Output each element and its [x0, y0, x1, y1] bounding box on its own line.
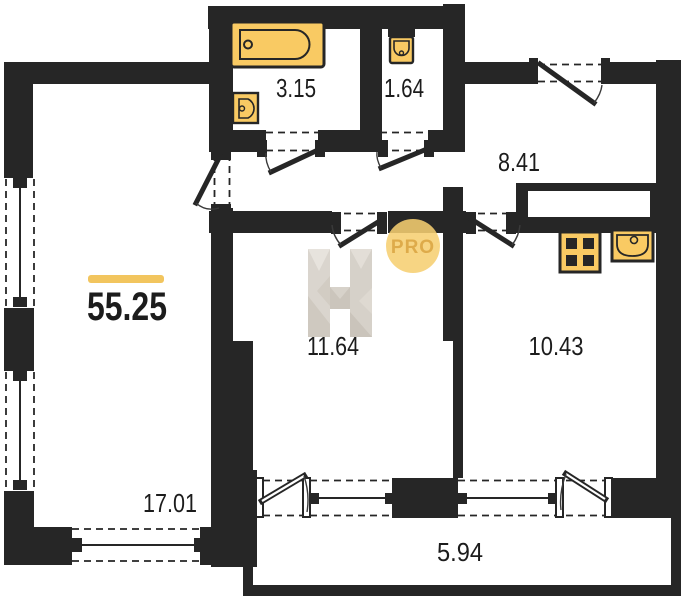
wall — [602, 62, 656, 84]
room-label-toilet: 1.64 — [384, 73, 424, 103]
floorplan: PRO 55.25 3.15 1.64 8.41 11.64 10.43 17.… — [0, 0, 681, 600]
window-room-balcony — [309, 481, 395, 516]
balcony-wall — [671, 518, 681, 596]
window-left-upper — [6, 178, 34, 307]
wall — [443, 187, 463, 211]
floorplan-drawing: PRO 55.25 3.15 1.64 8.41 11.64 10.43 17.… — [0, 0, 681, 600]
door-room-balcony — [256, 476, 310, 517]
outer-wall-left — [4, 62, 33, 178]
door-room — [331, 212, 388, 245]
kitchen-sink-icon — [612, 230, 653, 261]
room-label-balcony: 5.94 — [437, 537, 483, 567]
wall — [4, 308, 34, 371]
door-entrance — [529, 58, 610, 103]
room-label-room: 11.64 — [307, 331, 359, 361]
door-living-room — [196, 151, 231, 213]
wall — [443, 62, 538, 84]
room-label-bathroom: 3.15 — [276, 73, 316, 103]
door-toilet — [377, 133, 434, 169]
room-label-living-room: 17.01 — [143, 488, 197, 518]
door-kitchen-balcony — [556, 474, 612, 517]
room-label-hallway: 8.41 — [498, 147, 540, 177]
total-area-label: 55.25 — [87, 285, 167, 329]
stove-icon — [560, 232, 600, 272]
window-kitchen-balcony — [457, 481, 558, 516]
toilet-icon — [388, 20, 415, 63]
wardrobe-niche — [528, 191, 650, 217]
wall — [4, 527, 72, 565]
bathtub-icon — [231, 22, 324, 67]
total-area-underline — [88, 275, 164, 283]
wall — [453, 341, 463, 478]
balcony-wall — [243, 585, 681, 596]
door-kitchen — [466, 212, 520, 245]
wall — [612, 478, 656, 518]
bath-sink-icon — [233, 93, 258, 123]
h-logo-watermark — [308, 249, 372, 337]
wall — [443, 233, 463, 341]
door-bathroom — [257, 133, 325, 173]
wall — [209, 211, 332, 233]
pro-badge-label: PRO — [391, 237, 435, 258]
room-label-kitchen: 10.43 — [529, 331, 584, 361]
window-left-lower — [6, 371, 34, 490]
wall — [318, 130, 380, 152]
pro-badge: PRO — [386, 219, 440, 273]
wall — [211, 341, 253, 478]
outer-wall-right — [656, 60, 681, 518]
wall — [4, 62, 213, 84]
window-living-room-bottom — [72, 529, 204, 561]
wall — [392, 478, 458, 518]
wall — [211, 470, 257, 567]
